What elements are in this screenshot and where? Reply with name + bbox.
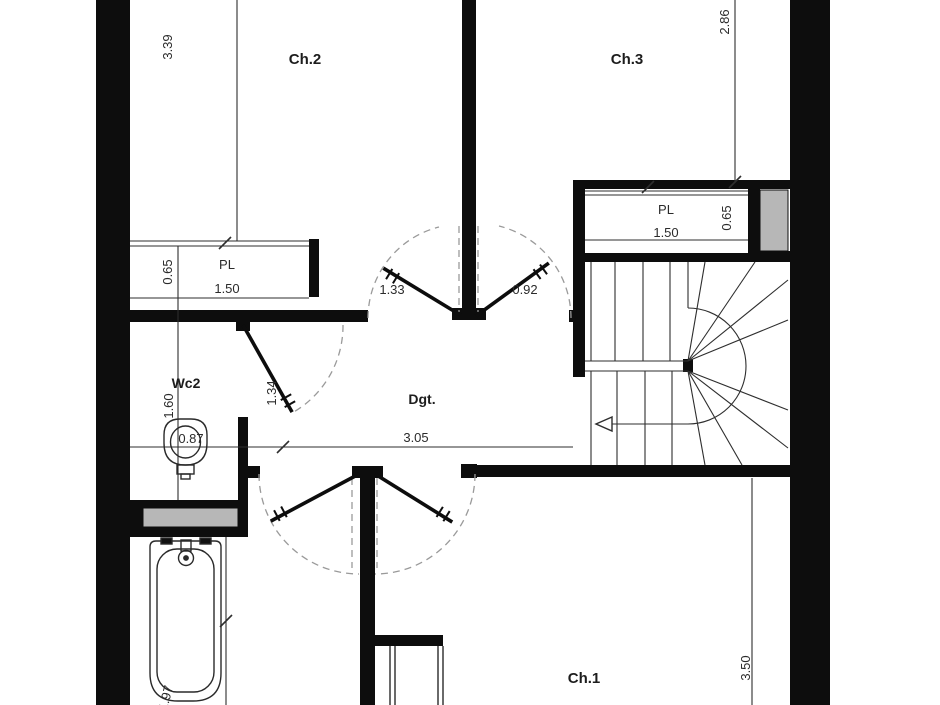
stair-winder [688, 371, 788, 448]
walls [96, 0, 830, 705]
dim-bath-length: 1.97 [155, 684, 176, 705]
stair-winder [688, 262, 755, 361]
wall-shelf-top [130, 500, 240, 508]
dim-hall-width: 3.05 [403, 430, 428, 445]
wall-stair-top [573, 253, 790, 262]
dim-closet-right-depth: 0.65 [719, 205, 734, 230]
wall-left-outer [96, 0, 130, 705]
stair-direction-arrow [596, 417, 612, 431]
dim-ch3-height: 2.86 [717, 9, 732, 34]
bathtub-deck-mark [161, 538, 172, 544]
wall-shelf-bottom [130, 527, 248, 537]
wall-wc2-east [238, 417, 248, 537]
room-label-ch2: Ch.2 [289, 51, 322, 68]
wall-ch2-ch3-divider [462, 0, 476, 318]
label-closet-right: PL [658, 202, 674, 217]
bathtub-faucet-dot [184, 556, 188, 560]
toilet [164, 419, 207, 479]
dim-ch1-height: 3.50 [738, 655, 753, 680]
room-label-ch1: Ch.1 [568, 670, 601, 687]
wall-stair-bottom [463, 465, 790, 477]
door-leaf-ch1 [373, 467, 457, 525]
door-leaf-bath [267, 467, 361, 525]
bathtub-deck-mark [200, 538, 211, 544]
stair-walkline-arc [688, 308, 746, 424]
shaft-stairwell [760, 190, 788, 251]
door-leaves [240, 260, 554, 526]
wall-stair-left [573, 183, 585, 377]
floor-plan-page: Ch.2 Ch.3 Ch.1 Wc2 Dgt. PL PL 3.39 2.86 … [0, 0, 940, 705]
door-arc-ch2 [368, 227, 439, 318]
thin-lines [130, 0, 752, 705]
stair-winder [688, 262, 705, 361]
door-arc-bath [259, 474, 359, 574]
door-arc-ch1 [375, 474, 475, 574]
dim-door-ch3: 0.92 [512, 282, 537, 297]
toilet-cistern [177, 465, 194, 474]
dim-ch2-height: 3.39 [160, 34, 175, 59]
dim-wc2-depth: 1.60 [161, 393, 176, 418]
dim-door-wc2: 1.34 [264, 380, 279, 405]
dim-closet-left-depth: 0.65 [160, 259, 175, 284]
stair-winder [688, 320, 788, 361]
wall-shelf-left-chunk [130, 500, 143, 537]
room-label-wc2: Wc2 [172, 375, 201, 391]
bathtub-inner [157, 549, 214, 692]
wall-jamb-bath-door [248, 466, 260, 478]
room-label-hall: Dgt. [408, 391, 435, 407]
floor-plan-drawing: Ch.2 Ch.3 Ch.1 Wc2 Dgt. PL PL 3.39 2.86 … [0, 0, 940, 705]
toilet-flush [181, 474, 190, 479]
bathtub [150, 538, 221, 701]
wall-hall-top [130, 310, 368, 322]
dim-tick [219, 237, 231, 249]
door-arc-wc2 [292, 325, 343, 413]
labels: Ch.2 Ch.3 Ch.1 Wc2 Dgt. PL PL 3.39 2.86 … [155, 9, 753, 705]
fixtures [150, 419, 443, 705]
label-closet-left: PL [219, 257, 235, 272]
wall-pl-right-side [748, 183, 760, 257]
dim-closet-left-width: 1.50 [214, 281, 239, 296]
dim-wc2-width: 0.87 [178, 431, 203, 446]
wall-bath-ch1-partition [360, 466, 375, 705]
wall-ch1-closet-top [366, 635, 443, 646]
wall-right-outer [790, 0, 830, 705]
wall-pl-left-end-block [309, 239, 319, 297]
stair-winder [688, 280, 788, 361]
room-label-ch3: Ch.3 [611, 51, 644, 68]
dim-door-ch2: 1.33 [379, 282, 404, 297]
stair-winder [688, 371, 788, 410]
ch1-closet [390, 646, 443, 705]
shaft-bathroom [143, 508, 238, 527]
dim-closet-right-width: 1.50 [653, 225, 678, 240]
